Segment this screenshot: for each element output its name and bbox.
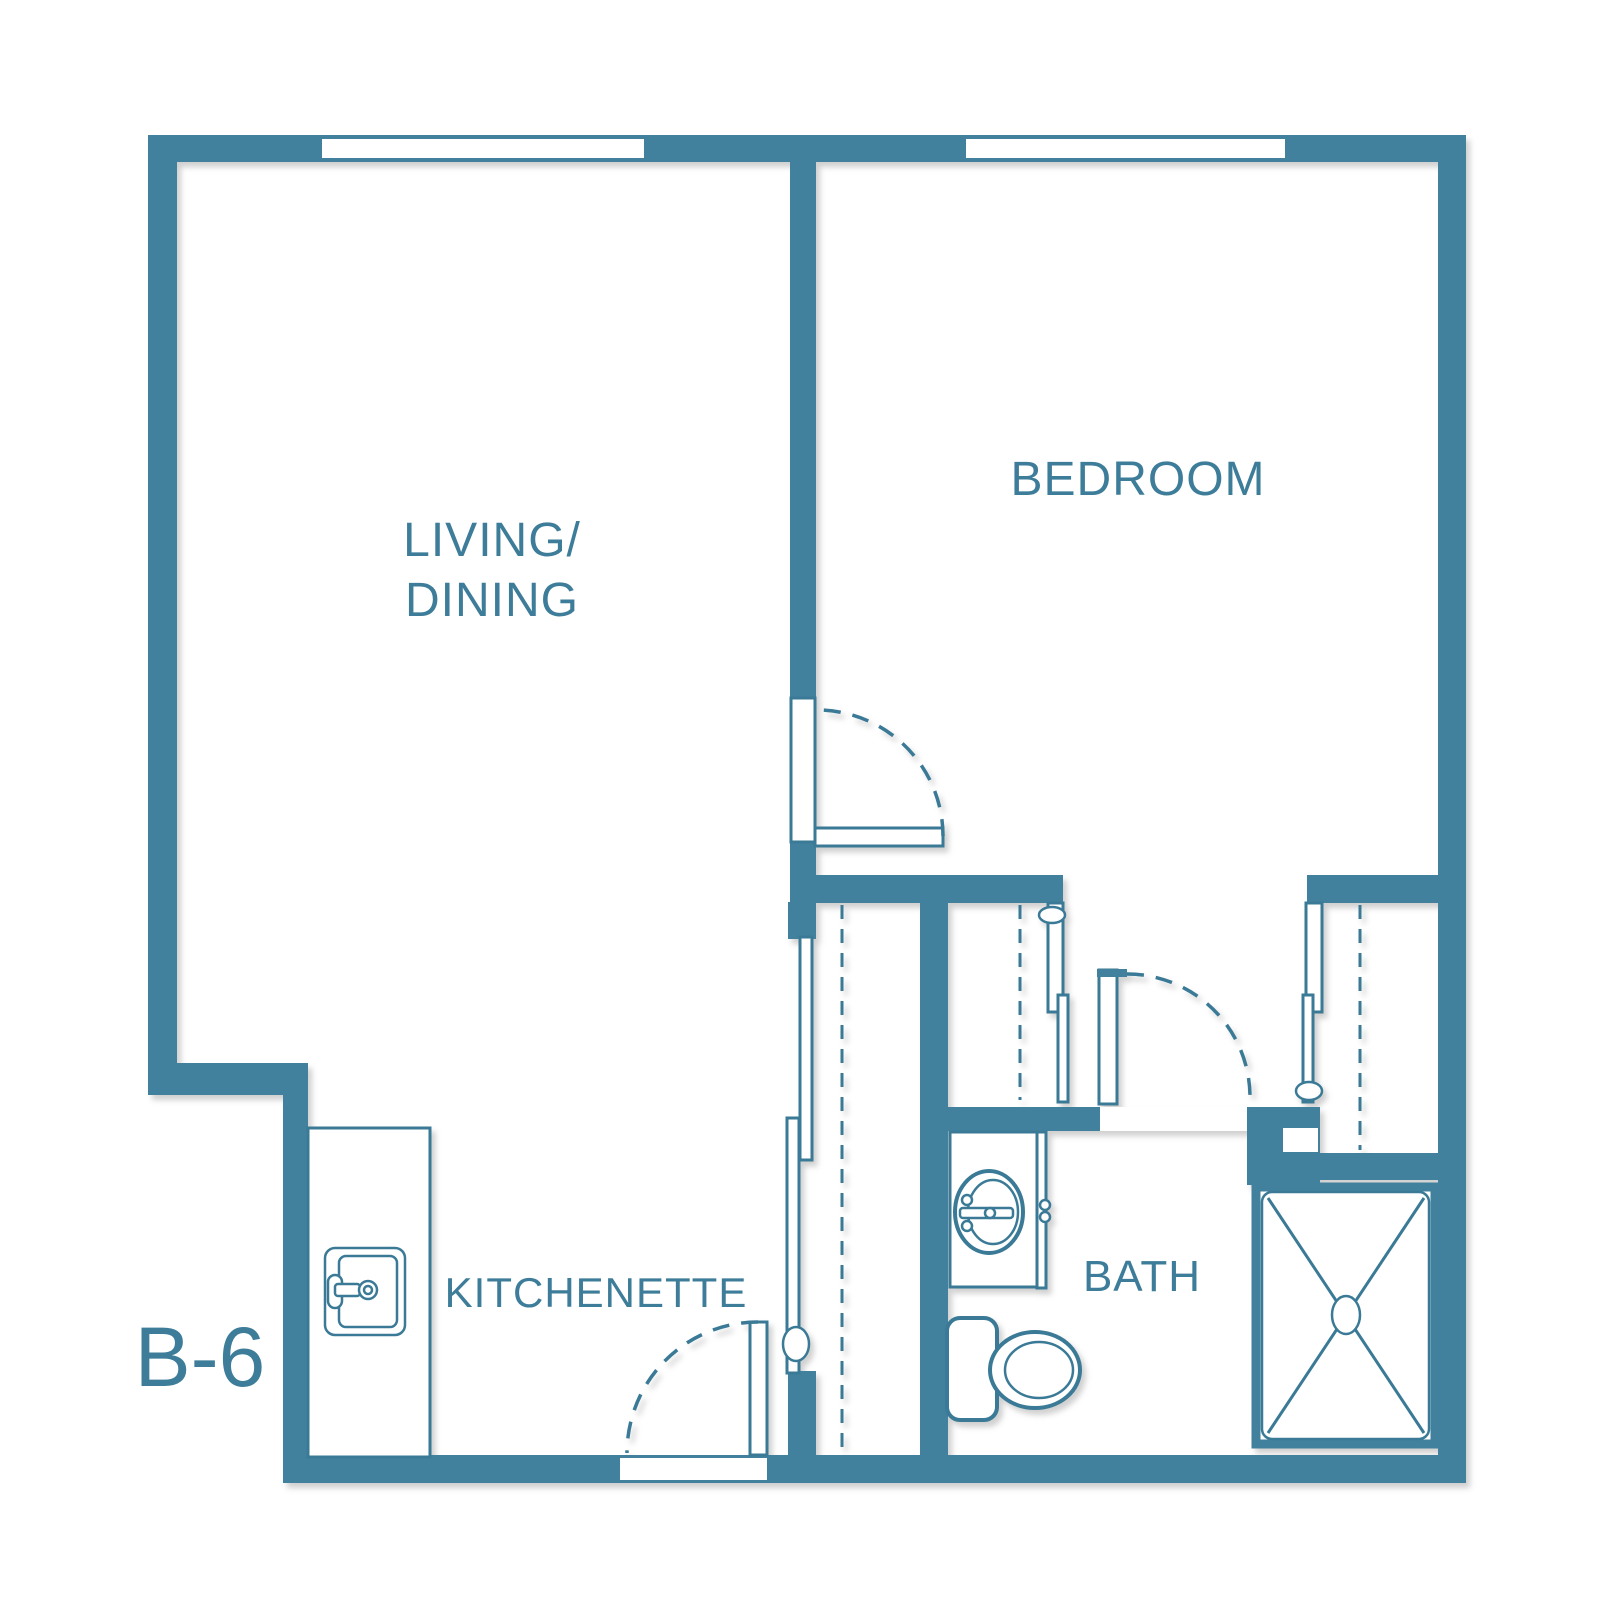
hall-closet-door-a [800, 937, 812, 1160]
kitchen-faucet-spout [335, 1284, 360, 1296]
shower-drain [1332, 1296, 1360, 1334]
left-wall [148, 162, 177, 1063]
entry-door-swing [627, 1322, 758, 1453]
closet-column-bottom [788, 1371, 816, 1457]
right-wall [1438, 162, 1466, 1458]
bath-door-swing [1127, 974, 1250, 1097]
bath-wall [945, 1107, 1105, 1131]
living-window [322, 139, 644, 158]
vanity-knob-bottom [962, 1221, 972, 1231]
bedroom-wall-upper [790, 162, 816, 699]
lower-left-wall [283, 1095, 308, 1460]
toilet-seat [1005, 1342, 1073, 1398]
living-dining-label-line2: DINING [405, 577, 579, 625]
bedroom-label: BEDROOM [1010, 456, 1265, 504]
vanity-hinge-bottom [1040, 1212, 1050, 1222]
bath-door-leaf [1099, 970, 1117, 1104]
kitchenette-label: KITCHENETTE [445, 1272, 748, 1314]
bedroom-window [966, 139, 1285, 158]
block-notch [1283, 1128, 1318, 1152]
right-closet-handle [1296, 1082, 1322, 1100]
closet-wall-right [1320, 1153, 1438, 1180]
hall-closet-handle [783, 1327, 809, 1361]
living-dining-label-line1: LIVING/ [403, 517, 581, 565]
vanity-faucet-dot [985, 1208, 995, 1218]
bedroom-door-swing [817, 710, 943, 836]
closet-column-top [788, 902, 816, 939]
central-wall [920, 875, 948, 1457]
bottom-wall [283, 1455, 1466, 1483]
vanity-knob-top [962, 1195, 972, 1205]
unit-number-label: B-6 [135, 1315, 266, 1399]
kitchen-faucet-dot [364, 1286, 372, 1294]
entry-door-leaf [750, 1322, 767, 1455]
bath-door-sill [1100, 1107, 1247, 1131]
step-wall [148, 1063, 308, 1095]
left-closet-handle [1039, 907, 1065, 923]
floor-plan-page: LIVING/ DINING BEDROOM KITCHENETTE BATH … [0, 0, 1600, 1622]
vanity-hinge-top [1040, 1200, 1050, 1210]
bath-label: BATH [1083, 1255, 1201, 1299]
bedroom-door-leaf [815, 828, 943, 846]
bedroom-door-jamb [791, 698, 815, 842]
entry-door-sill [620, 1458, 767, 1480]
bath-door-hinge-tick [1097, 969, 1127, 977]
hall-wall-right [1307, 875, 1438, 903]
left-closet-door-b [1058, 995, 1068, 1102]
